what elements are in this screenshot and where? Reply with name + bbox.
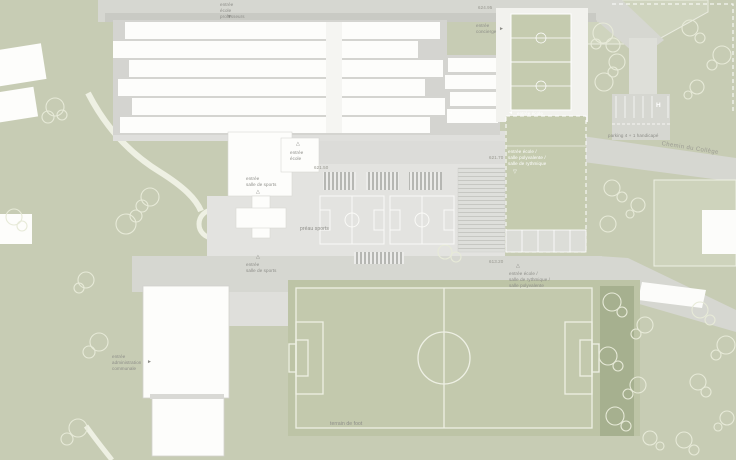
down-arrow-icon: ▽	[513, 170, 517, 175]
down-arrow-icon: ▼	[227, 15, 232, 20]
up-arrow-icon: △	[256, 255, 260, 260]
up-arrow-icon: △	[296, 142, 300, 147]
label-road-entrance-multi: entrée école / salle de rythmique / sall…	[509, 271, 550, 289]
parking-lane	[629, 38, 657, 98]
label-parking: parking 4 + 1 handicapé	[608, 133, 658, 139]
label-court-school-entrance: entrée école	[517, 111, 543, 117]
right-arrow-icon: ►	[499, 27, 504, 32]
bike-shelter	[506, 230, 586, 252]
label-sports-courtyard: préau sports	[300, 226, 329, 233]
football-pitch	[289, 288, 599, 428]
handicap-stall-mark: H	[656, 102, 661, 110]
site-plan: entrée école professeurs ▼ 624.95 entrée…	[0, 0, 736, 460]
level-marker-road: 613.20	[489, 259, 503, 265]
main-school-building	[113, 20, 500, 135]
multiuse-court	[506, 116, 586, 252]
level-marker-yard: 621.50	[314, 165, 328, 171]
site-plan-drawing	[0, 0, 736, 460]
football-area	[288, 280, 640, 436]
amphitheater-steps	[458, 168, 505, 252]
label-court-entrance-multi: entrée école / salle polyvalente / salle…	[508, 149, 546, 167]
label-administration-entrance: entrée administration communale	[112, 354, 141, 372]
up-arrow-icon: △	[256, 190, 260, 195]
level-marker-parking: 624.95	[478, 5, 492, 11]
administration-building	[143, 286, 229, 456]
up-arrow-icon: △	[516, 264, 520, 269]
label-sports-hall-entrance-south: entrée salle de sports	[246, 262, 277, 274]
right-arrow-icon: ►	[147, 360, 152, 365]
label-caretaker-entrance: entrée concierge	[476, 23, 496, 35]
level-marker-court: 621.70	[489, 155, 503, 161]
upper-courts	[496, 8, 588, 122]
west-walkway	[229, 292, 296, 326]
label-teachers-entrance: entrée école professeurs	[220, 2, 245, 20]
label-school-entrance: entrée école	[290, 150, 303, 162]
label-sports-hall-entrance-north: entrée salle de sports	[246, 176, 277, 188]
left-arrow-icon: ◄	[508, 111, 513, 116]
label-football-pitch: terrain de foot	[330, 421, 362, 428]
